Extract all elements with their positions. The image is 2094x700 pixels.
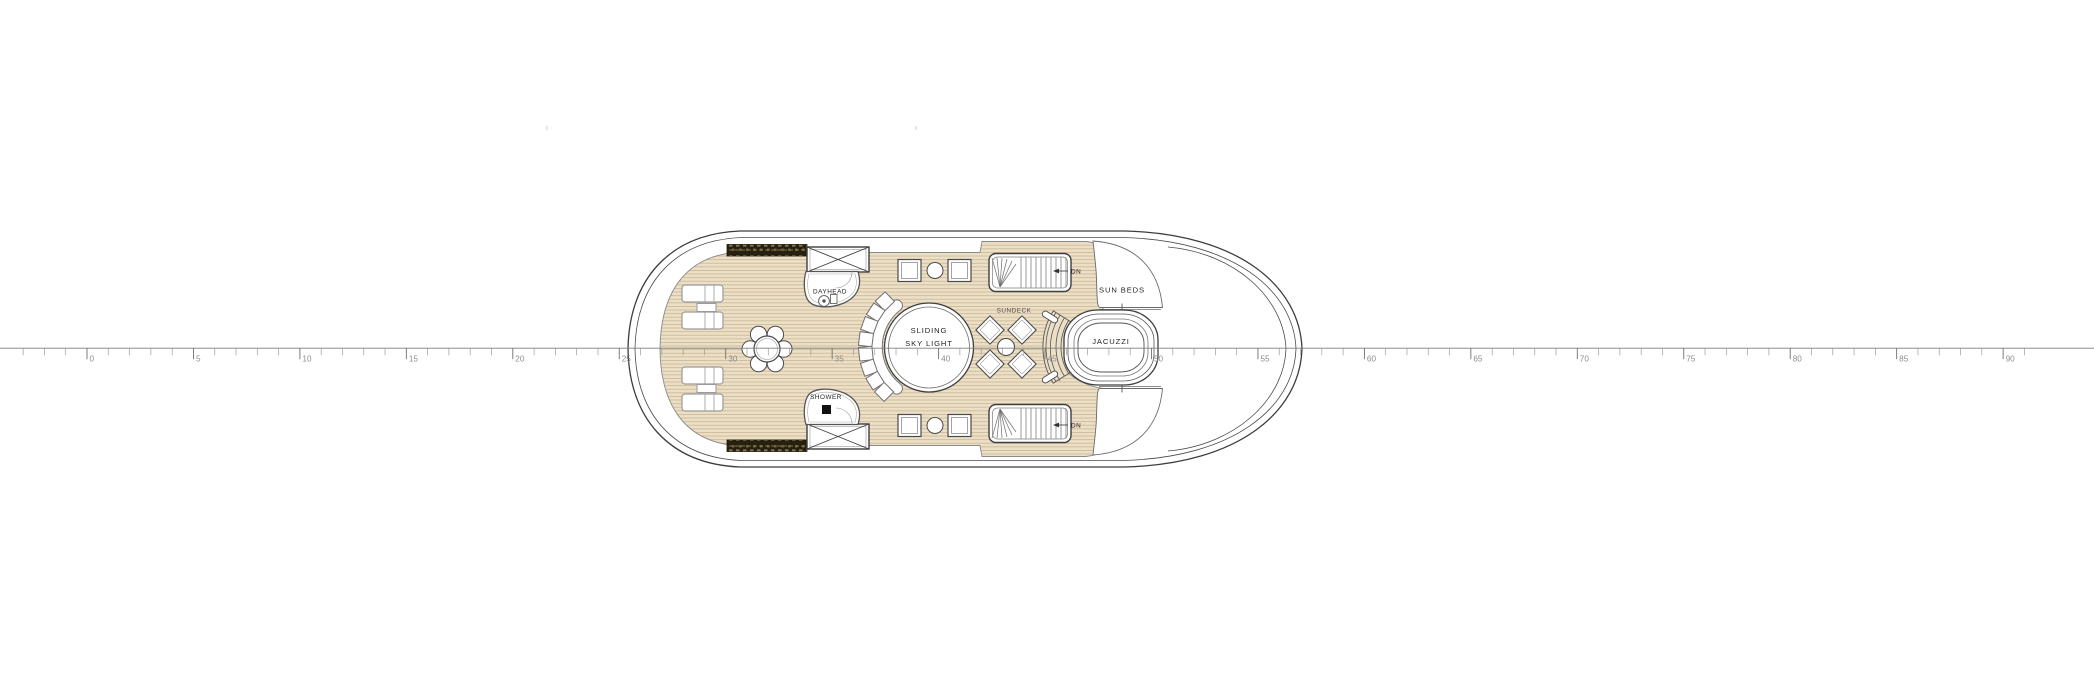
dayhead-label: DAYHEAD (813, 289, 847, 296)
ruler-number: 60 (1367, 355, 1377, 364)
ruler-number: 75 (1686, 355, 1696, 364)
skylight-label-line1: SLIDING (911, 326, 948, 335)
ruler-number: 65 (1473, 355, 1483, 364)
ruler-number: 25 (622, 355, 632, 364)
ruler-number: 80 (1793, 355, 1803, 364)
ruler-number: 90 (2006, 355, 2016, 364)
sun-beds-label: SUN BEDS (1099, 286, 1145, 295)
ruler-number: 20 (515, 355, 525, 364)
ruler-number: 10 (302, 355, 312, 364)
deck-plan-drawing: DAYHEAD SHOWER SLIDING SKY LIGHT SUNDECK… (0, 0, 2094, 700)
ruler-number: 30 (728, 355, 738, 364)
round-table (998, 339, 1015, 356)
deck-plan-canvas: DAYHEAD SHOWER SLIDING SKY LIGHT SUNDECK… (0, 0, 2094, 700)
ruler-number: 35 (835, 355, 845, 364)
ruler-number: 55 (1260, 355, 1270, 364)
ruler-number: 40 (941, 355, 951, 364)
ruler-number: 15 (409, 355, 419, 364)
dn-label-bottom: DN (1071, 423, 1081, 430)
ruler-number: 45 (1048, 355, 1058, 364)
shower-head-icon (822, 405, 831, 414)
ruler-number: 0 (90, 355, 95, 364)
cistern-icon (831, 295, 838, 304)
ruler-number: 85 (1899, 355, 1909, 364)
bar-stool (858, 332, 873, 347)
ruler-number: 70 (1580, 355, 1590, 364)
shower-label: SHOWER (810, 394, 842, 401)
dn-label-top: DN (1071, 269, 1081, 276)
ruler-number: 50 (1154, 355, 1164, 364)
sundeck-label: SUNDECK (997, 308, 1032, 315)
ruler-number: 5 (196, 355, 201, 364)
skylight-label-line2: SKY LIGHT (905, 339, 953, 348)
jacuzzi-label: JACUZZI (1092, 337, 1130, 346)
jacuzzi (1041, 310, 1158, 385)
